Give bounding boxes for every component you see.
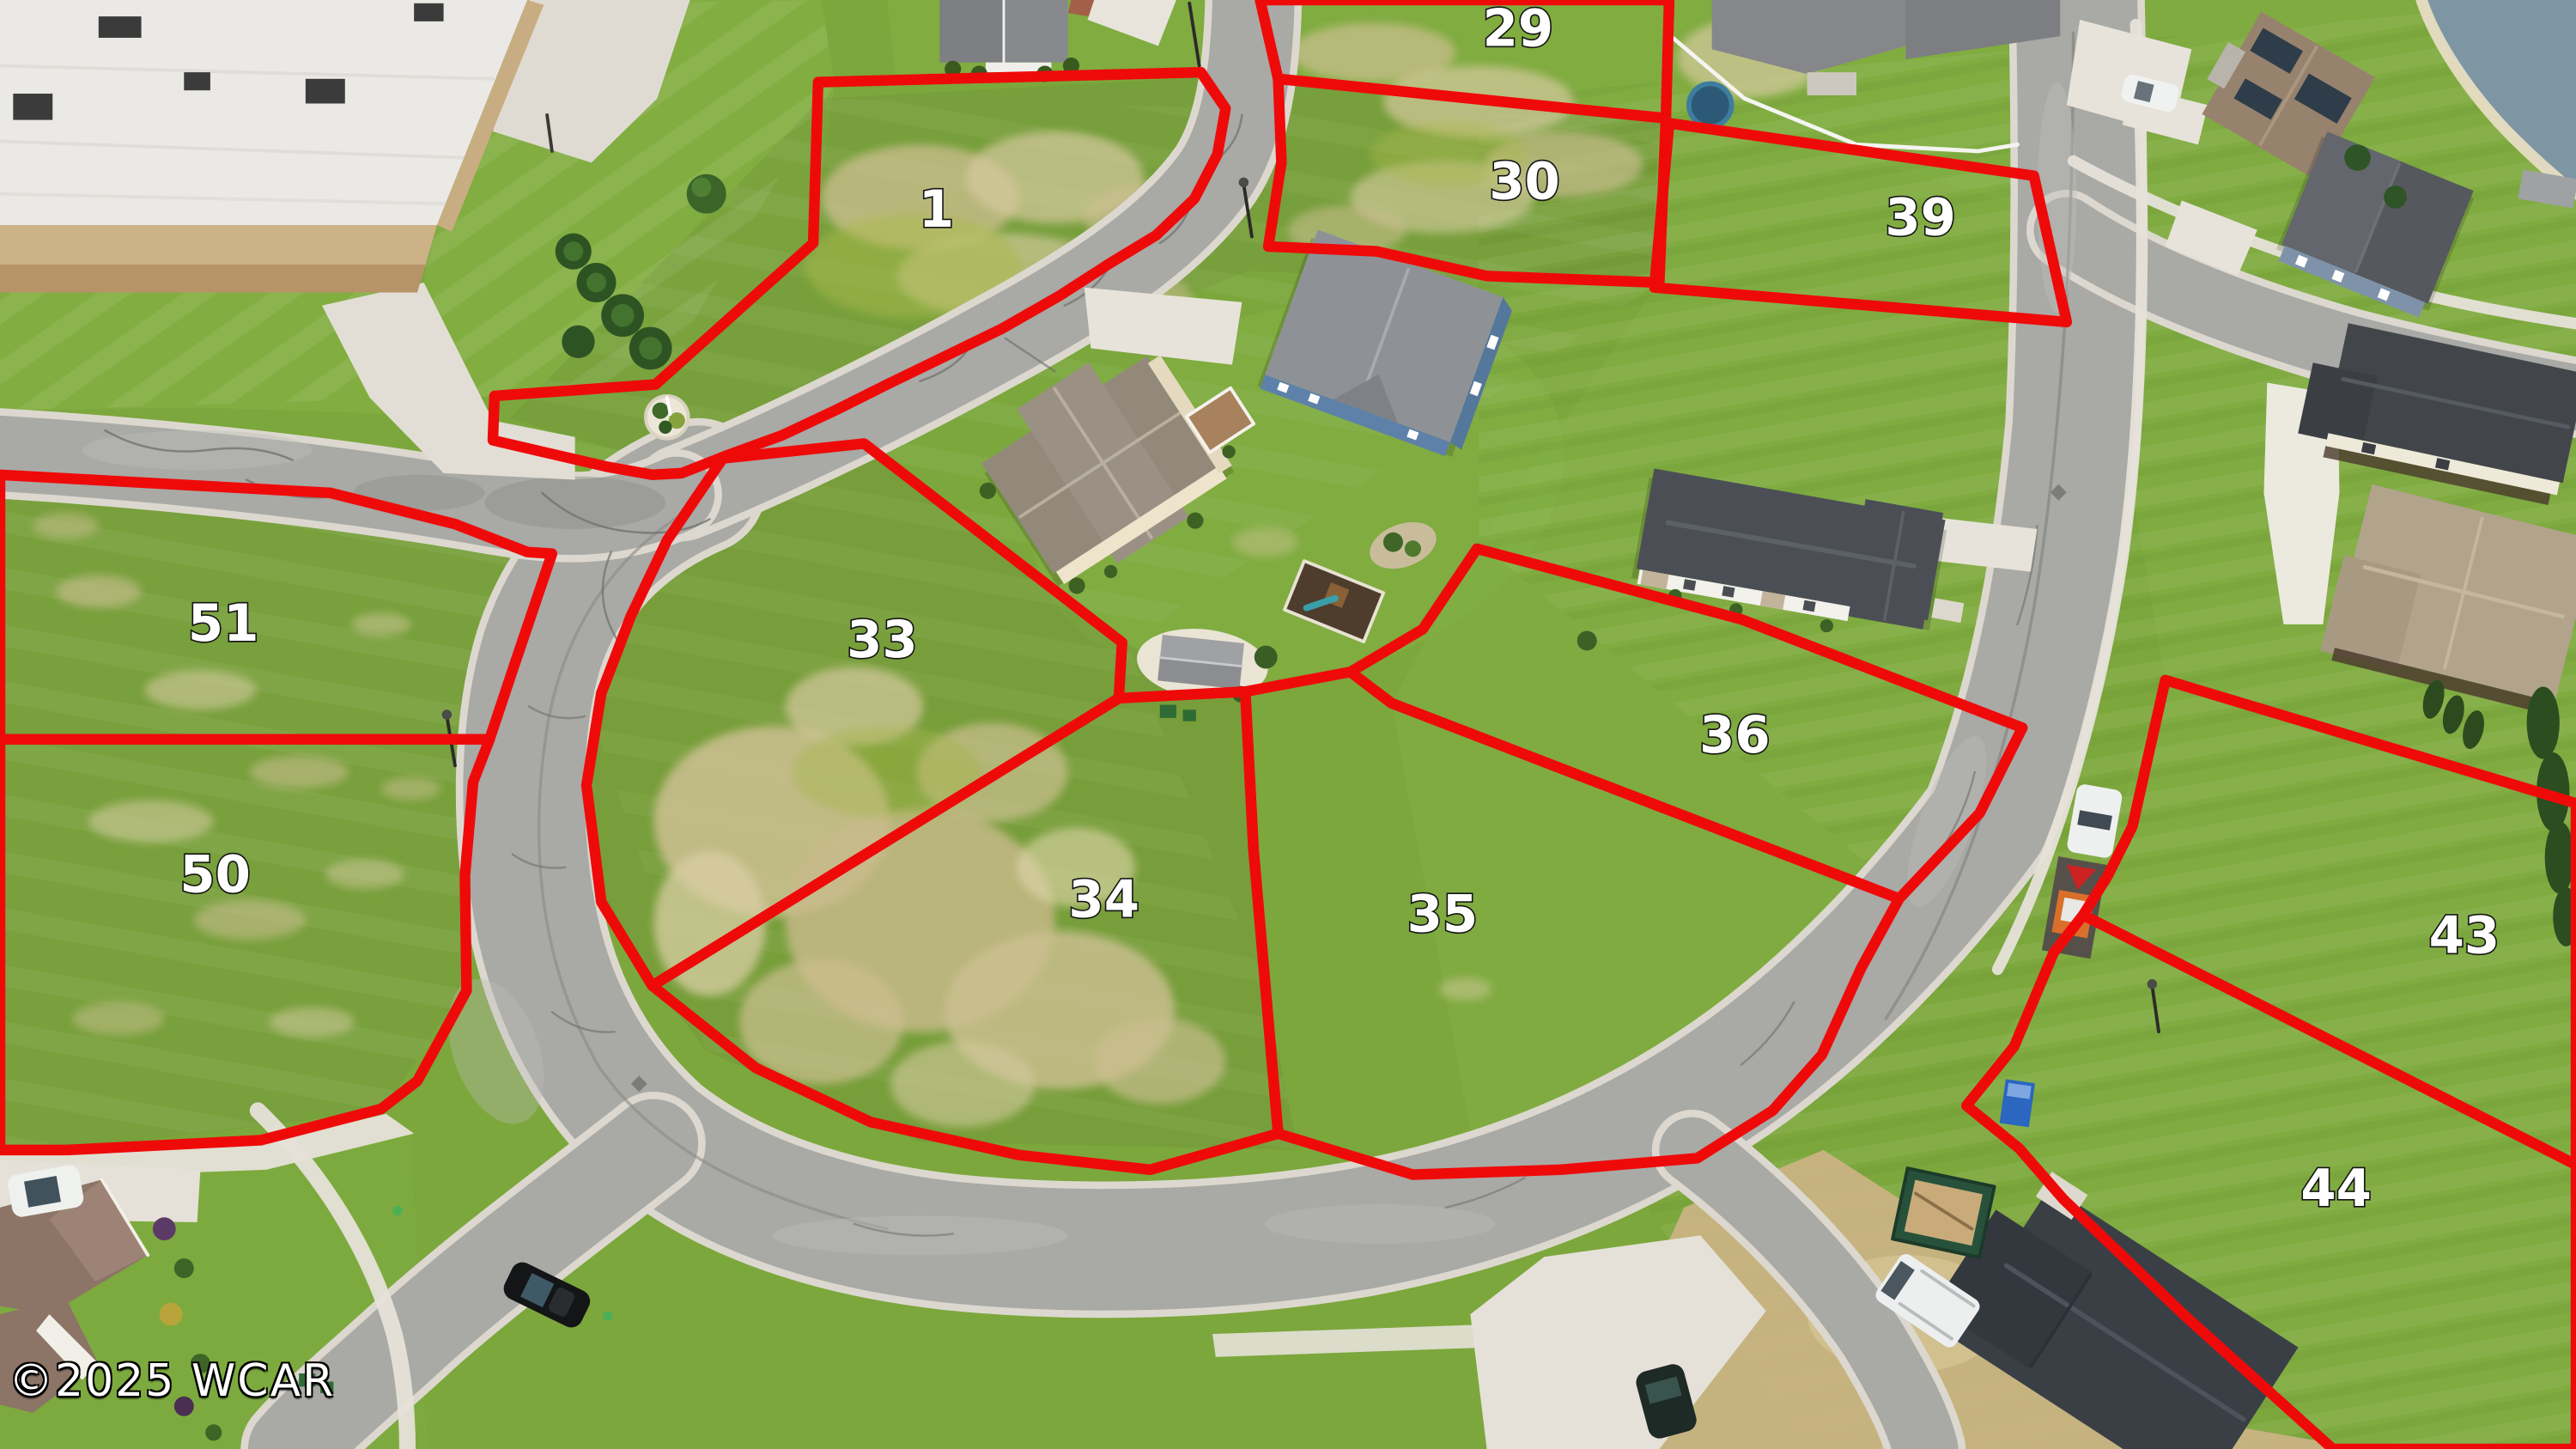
window: [1802, 600, 1815, 612]
copyright-watermark: ©2025 WCAR: [9, 1355, 335, 1407]
hedge: [2545, 821, 2574, 893]
bush-purple: [153, 1217, 176, 1240]
dirt: [1094, 1019, 1225, 1104]
spruce-tree-light: [611, 304, 635, 327]
hvac-unit: [306, 79, 345, 104]
lot-39-label: 39: [1885, 188, 1956, 247]
dirt: [250, 756, 349, 788]
dirt: [325, 859, 404, 888]
lot-29-label: 29: [1483, 0, 1554, 58]
road-dark-patch: [484, 477, 665, 529]
trampoline: [1689, 84, 1732, 127]
dirt: [1439, 977, 1492, 1001]
window: [1722, 586, 1735, 598]
hedge: [2527, 687, 2560, 759]
utility-box: [1160, 705, 1176, 718]
hvac-unit: [13, 94, 52, 120]
dirt: [890, 1042, 1035, 1127]
window: [1683, 579, 1696, 591]
dirt: [194, 900, 306, 940]
dirt: [72, 1002, 164, 1035]
hvac-unit: [184, 72, 210, 90]
bush: [1577, 630, 1597, 650]
dirt: [144, 670, 256, 709]
lot-35-label: 35: [1407, 885, 1479, 944]
aerial-lot-map: 12930395150333435364344 ©2025 WCAR: [0, 0, 2576, 1449]
utility-box: [1183, 709, 1196, 721]
aerial-photo-canvas: 12930395150333435364344: [0, 0, 2576, 1449]
bush: [205, 1424, 222, 1440]
dirt: [739, 959, 903, 1084]
dirt: [270, 1007, 355, 1036]
dirt: [351, 612, 410, 636]
garden-island-bush: [1405, 540, 1421, 557]
lot-43-label: 43: [2429, 905, 2500, 965]
streetlight-head: [1239, 178, 1249, 187]
commercial-facade-lower: [0, 265, 426, 293]
commercial-building-roof: [0, 0, 527, 225]
paint-mark: [603, 1311, 612, 1320]
hvac-unit: [414, 3, 443, 21]
bush: [2384, 186, 2407, 209]
lot-1-label: 1: [919, 180, 954, 239]
dirt: [381, 777, 440, 801]
spruce-tree-light: [639, 337, 662, 360]
scene-layers: [0, 0, 2576, 1449]
bush: [174, 1258, 194, 1278]
lot-36-label: 36: [1699, 705, 1771, 764]
monument-bush: [653, 403, 669, 419]
spruce-tree: [562, 326, 594, 358]
spruce-tree-light: [586, 273, 606, 293]
streetlight-head: [442, 709, 452, 719]
lot-44-label: 44: [2300, 1159, 2372, 1218]
monument-bush: [659, 421, 671, 434]
dirt: [33, 513, 99, 539]
lot-51-label: 51: [188, 594, 259, 653]
porta-potty: [2000, 1079, 2035, 1127]
dirt: [88, 800, 213, 843]
spruce-tree-light: [563, 241, 583, 261]
hvac-unit: [99, 16, 142, 38]
road-worn: [1265, 1204, 1495, 1244]
lot-34-label: 34: [1068, 869, 1139, 928]
dirt: [1232, 527, 1298, 557]
tree-round-light: [691, 178, 711, 198]
streetlight-head: [2148, 979, 2157, 989]
bush-yellow: [160, 1303, 183, 1326]
roof-gable-shade: [939, 0, 1004, 63]
bush: [2344, 144, 2371, 171]
garden-island-bush: [1383, 533, 1403, 552]
deck: [1807, 72, 1856, 95]
lot-50-label: 50: [179, 845, 251, 904]
dirt: [56, 575, 141, 607]
paint-mark: [392, 1206, 402, 1215]
commercial-facade-upper: [0, 225, 437, 265]
lot-30-label: 30: [1489, 151, 1560, 210]
lot-33-label: 33: [847, 610, 918, 669]
suv-glass: [24, 1176, 61, 1208]
